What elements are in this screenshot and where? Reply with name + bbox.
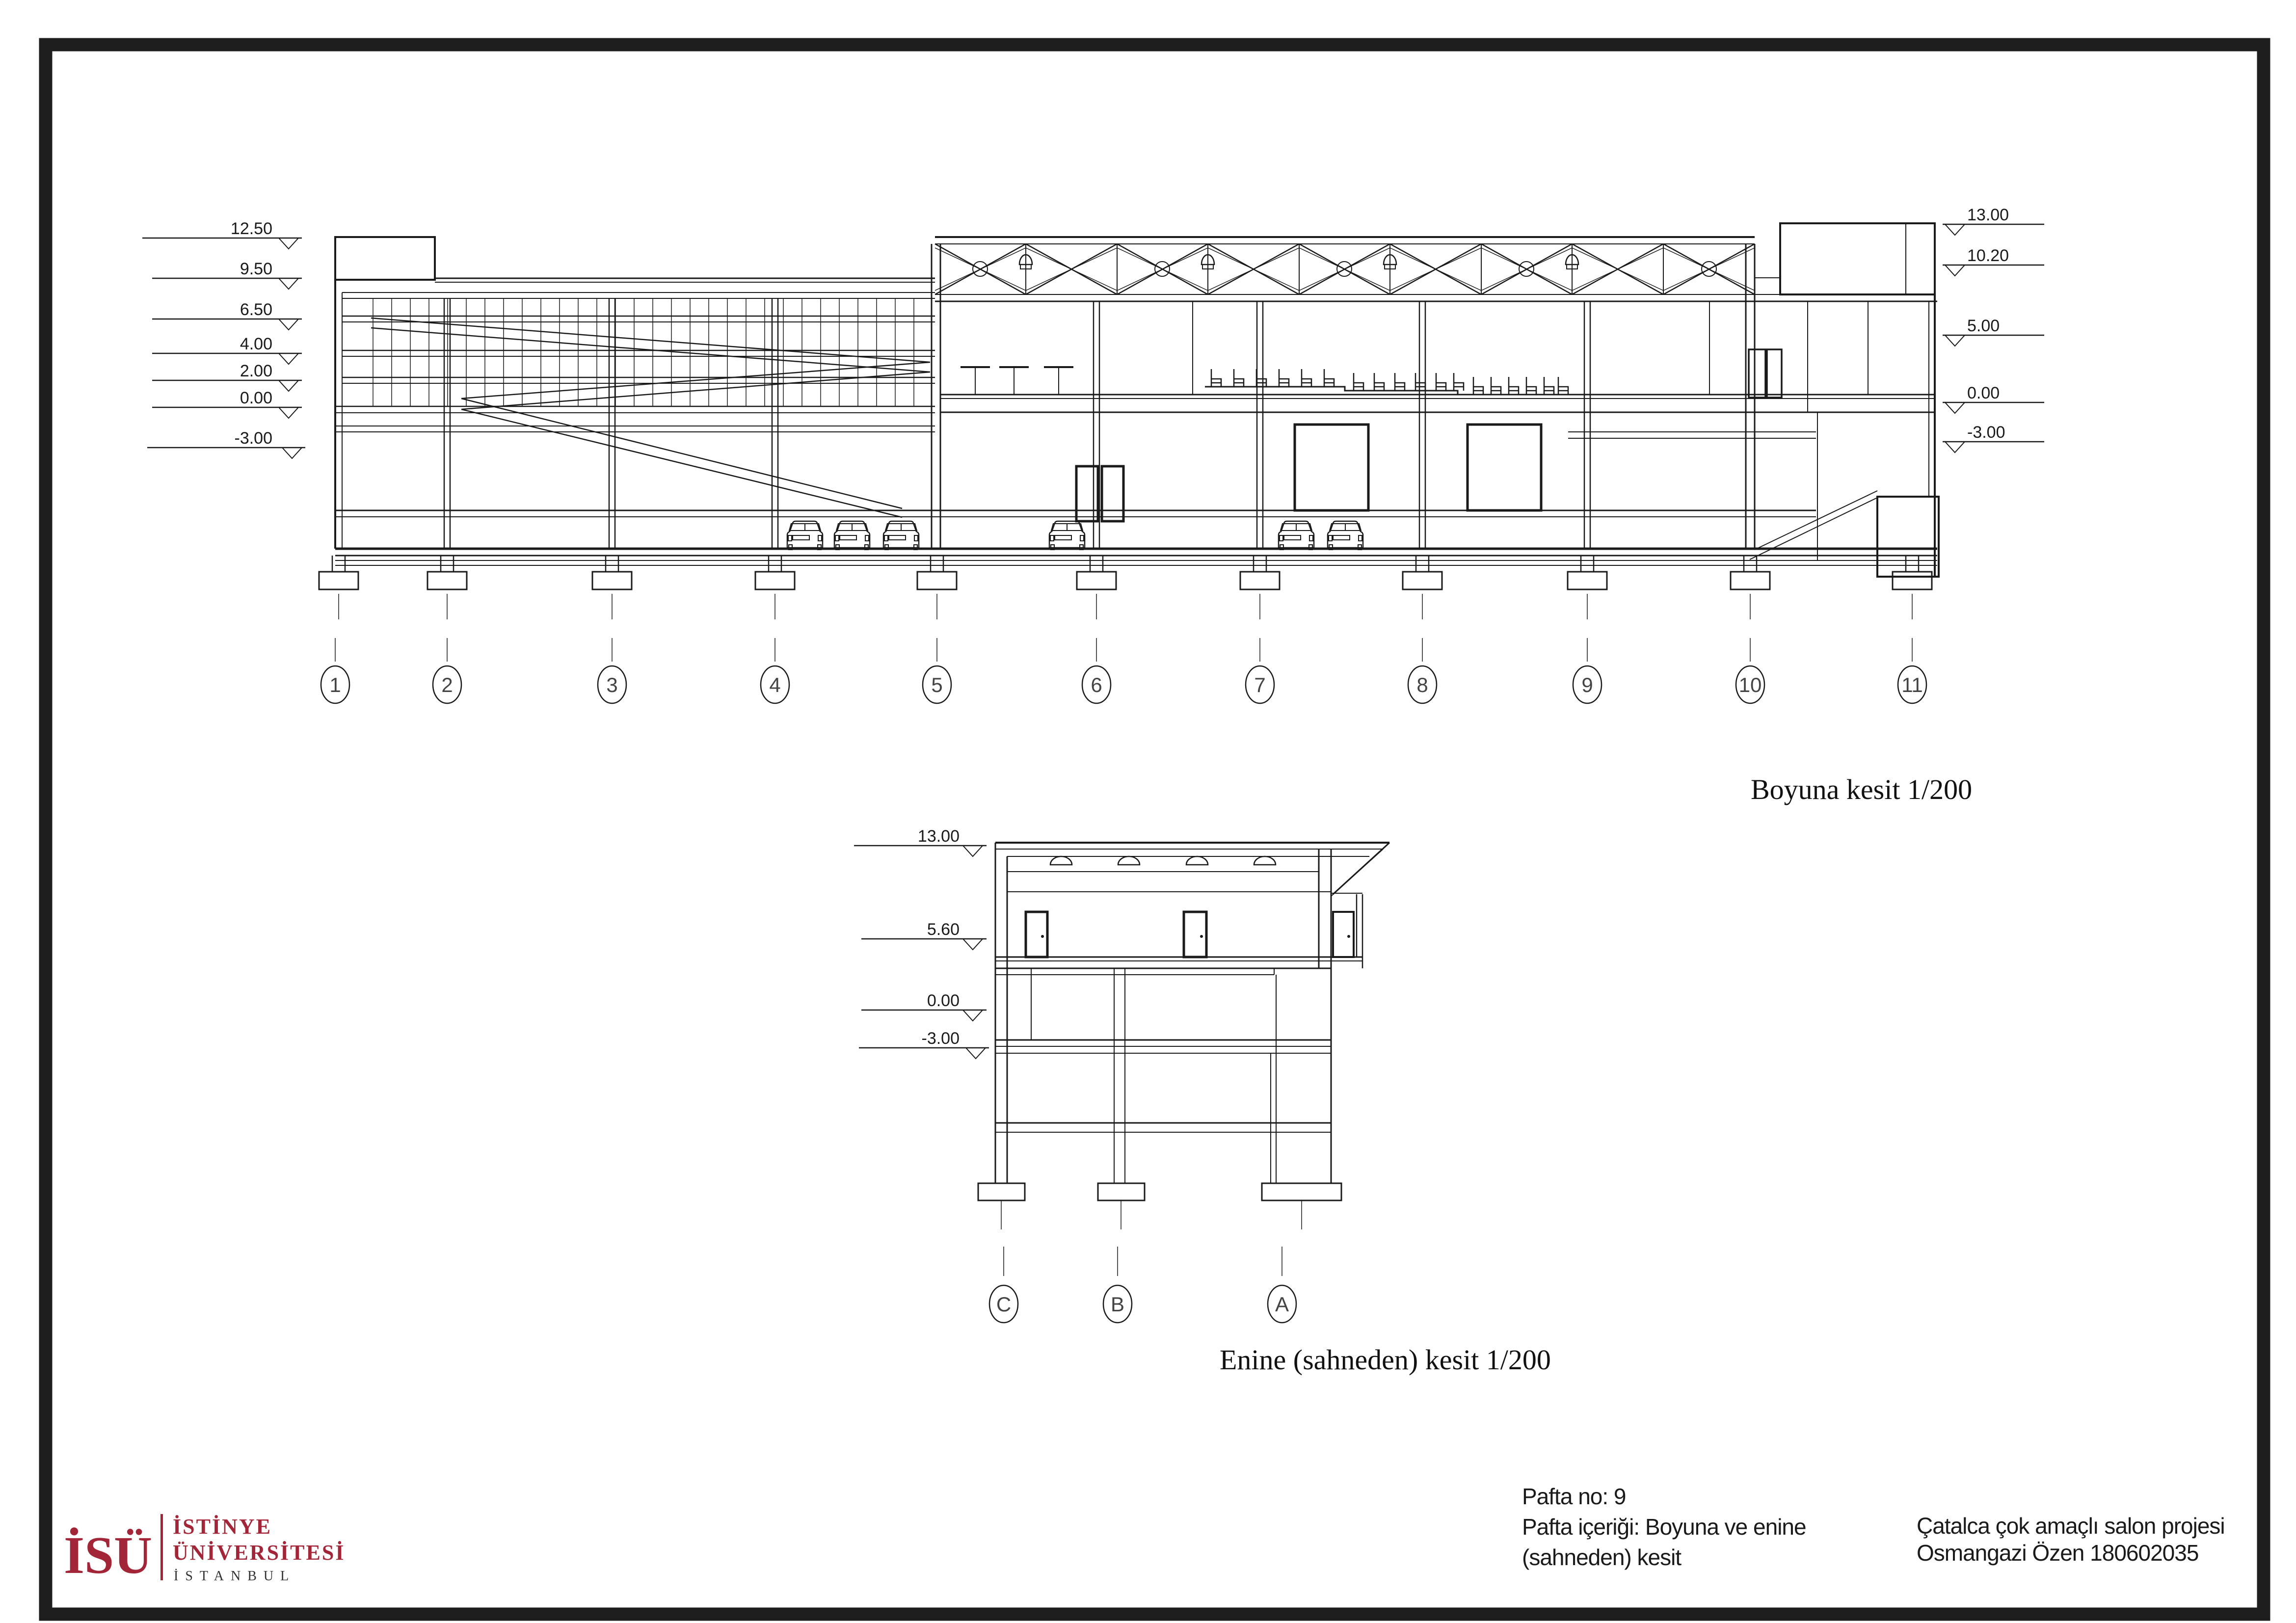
svg-text:A: A	[1275, 1293, 1289, 1316]
opening-box	[1295, 425, 1368, 510]
elevation-marker: -3.00	[1943, 423, 2044, 452]
cross-section-left-elevations: 13.00 5.60 0.00 -3.00	[854, 827, 989, 1059]
grid-bubble: B	[1103, 1285, 1132, 1323]
university-name-line1: İSTİNYE	[173, 1515, 272, 1539]
title-block: İSÜ İSTİNYE ÜNİVERSİTESİ İSTANBUL Pafta …	[64, 1484, 2225, 1585]
long-section-grid-bubbles: 1 2 3 4 5 6 7 8 9 10 11	[321, 638, 1926, 703]
svg-text:5.00: 5.00	[1967, 317, 2000, 335]
svg-text:8: 8	[1416, 673, 1428, 696]
svg-text:6.50: 6.50	[240, 300, 272, 319]
ramp	[371, 318, 930, 517]
grid-bubble: 5	[923, 666, 951, 703]
elevation-marker: 0.00	[861, 991, 987, 1021]
grid-bubble: 6	[1082, 666, 1111, 703]
elevation-marker: 4.00	[152, 335, 302, 364]
university-name-line2: ÜNİVERSİTESİ	[173, 1541, 345, 1565]
grid-bubble: 8	[1408, 666, 1437, 703]
svg-text:7: 7	[1254, 673, 1265, 696]
svg-text:9.50: 9.50	[240, 260, 272, 278]
sheet-content-line2: (sahneden) kesit	[1522, 1544, 1682, 1570]
svg-text:0.00: 0.00	[240, 389, 272, 407]
sheet-number: Pafta no: 9	[1522, 1484, 1626, 1509]
elevation-marker: 10.20	[1943, 246, 2044, 276]
long-section-right-elevations: 13.00 10.20 5.00 0.00 -3.00	[1943, 206, 2044, 452]
svg-text:C: C	[996, 1293, 1011, 1316]
isu-logo-text: İSÜ	[64, 1526, 152, 1585]
grid-bubble: 11	[1898, 666, 1926, 703]
svg-text:1: 1	[329, 673, 341, 696]
grid-bubble: 4	[761, 666, 789, 703]
elevation-marker: 5.60	[861, 920, 987, 950]
grid-bubble: 2	[433, 666, 461, 703]
elevation-marker: 0.00	[1943, 384, 2044, 413]
svg-text:5.60: 5.60	[927, 920, 960, 939]
long-section-caption: Boyuna kesit 1/200	[1751, 773, 1972, 805]
grid-bubble: A	[1268, 1285, 1296, 1323]
logo-divider	[160, 1514, 163, 1580]
mullions	[373, 298, 914, 406]
elevation-marker: 6.50	[152, 300, 302, 330]
svg-text:-3.00: -3.00	[235, 429, 273, 448]
sheet-info: Pafta no: 9 Pafta içeriği: Boyuna ve eni…	[1522, 1484, 1806, 1570]
long-section-left-elevations: 12.50 9.50 6.50 4.00 2.00 0.00 -3.00	[142, 219, 305, 458]
svg-text:2: 2	[441, 673, 453, 696]
grid-bubble: 9	[1573, 666, 1602, 703]
svg-text:9: 9	[1581, 673, 1593, 696]
elevation-marker: 12.50	[142, 219, 302, 249]
cross-section-grid-bubbles: C B A	[989, 1247, 1296, 1323]
svg-text:13.00: 13.00	[918, 827, 960, 846]
svg-text:-3.00: -3.00	[1967, 423, 2005, 442]
cross-section-drawing	[978, 843, 1389, 1229]
svg-text:10: 10	[1739, 673, 1762, 696]
grid-bubble: 3	[598, 666, 626, 703]
svg-text:6: 6	[1091, 673, 1102, 696]
grid-bubble: 7	[1246, 666, 1274, 703]
svg-text:13.00: 13.00	[1967, 206, 2009, 224]
sheet: 12.50 9.50 6.50 4.00 2.00 0.00 -3.00 13.…	[0, 0, 2296, 1623]
cross-section-caption: Enine (sahneden) kesit 1/200	[1220, 1344, 1551, 1376]
svg-text:0.00: 0.00	[927, 991, 960, 1010]
opening-box	[1468, 425, 1541, 510]
project-info: Çatalca çok amaçlı salon projesi Osmanga…	[1917, 1513, 2225, 1566]
svg-text:0.00: 0.00	[1967, 384, 2000, 402]
svg-text:B: B	[1111, 1293, 1124, 1316]
sheet-content-line1: Pafta içeriği: Boyuna ve enine	[1522, 1514, 1806, 1540]
svg-text:4: 4	[769, 673, 780, 696]
svg-text:5: 5	[931, 673, 942, 696]
project-title: Çatalca çok amaçlı salon projesi	[1917, 1513, 2225, 1539]
grid-bubble: C	[989, 1285, 1018, 1323]
elevation-marker: 13.00	[1943, 206, 2044, 235]
project-author: Osmangazi Özen 180602035	[1917, 1540, 2198, 1566]
elevation-marker: 5.00	[1943, 317, 2044, 346]
elevation-marker: 0.00	[152, 389, 302, 418]
elevation-marker: -3.00	[859, 1029, 989, 1059]
stair-block	[1877, 497, 1939, 577]
elevation-marker: 2.00	[152, 362, 302, 391]
grid-bubble: 10	[1736, 666, 1764, 703]
isu-logo: İSÜ İSTİNYE ÜNİVERSİTESİ İSTANBUL	[64, 1514, 345, 1585]
svg-text:4.00: 4.00	[240, 335, 272, 353]
longitudinal-section-drawing	[319, 223, 1939, 619]
elevation-marker: 9.50	[152, 260, 302, 289]
svg-text:3: 3	[606, 673, 617, 696]
svg-text:10.20: 10.20	[1967, 246, 2009, 265]
university-city: İSTANBUL	[174, 1569, 295, 1584]
elevation-marker: -3.00	[147, 429, 305, 458]
svg-text:11: 11	[1901, 673, 1923, 696]
svg-text:12.50: 12.50	[231, 219, 272, 238]
elevation-marker: 13.00	[854, 827, 987, 856]
svg-text:-3.00: -3.00	[922, 1029, 960, 1048]
grid-bubble: 1	[321, 666, 349, 703]
svg-text:2.00: 2.00	[240, 362, 272, 380]
